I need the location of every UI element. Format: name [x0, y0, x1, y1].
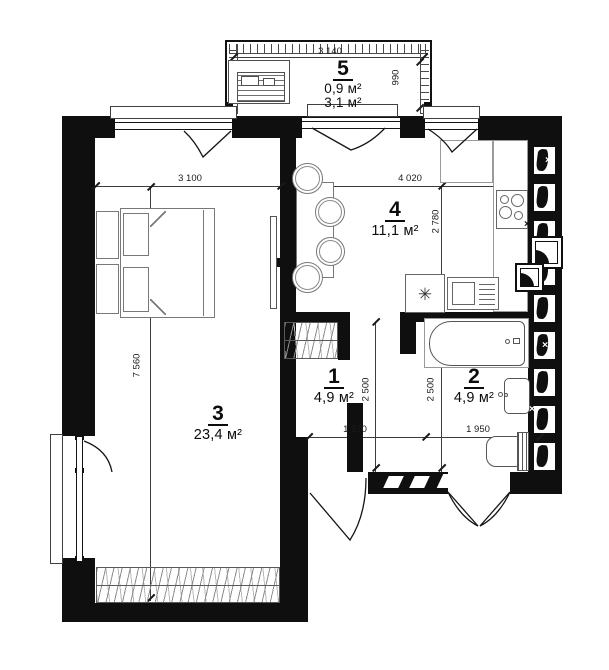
dim-hall-width: 1 970 [325, 424, 385, 435]
double-door-left-leaf [448, 492, 478, 526]
room-number: 1 [324, 366, 344, 389]
room-area-total: 3,1 м² [298, 95, 388, 110]
room-number: 5 [333, 58, 353, 81]
left-window-swing [84, 441, 112, 472]
room-label-4: 4 11,1 м² [345, 199, 445, 239]
dim-balcony-width: 3 140 [300, 46, 360, 57]
room-label-2: 2 4,9 м² [430, 366, 518, 406]
room-area: 4,9 м² [290, 390, 378, 406]
dim-bath-width: 1 950 [448, 424, 508, 435]
dim-kitchen-width: 4 020 [380, 173, 440, 184]
dim-left-height: 7 560 [132, 341, 143, 391]
floor-plan: × × × × ✳ [0, 0, 609, 670]
room-number: 4 [385, 199, 405, 222]
vent-x-mark: × [545, 155, 551, 166]
room-number: 2 [464, 366, 484, 389]
vent-x-mark: × [524, 219, 530, 230]
vent-x-mark: × [529, 404, 535, 415]
dim-balcony-depth: 990 [391, 53, 402, 103]
vent-shaft-icon [515, 263, 544, 292]
room-number: 3 [208, 403, 228, 426]
room-area: 23,4 м² [162, 427, 274, 443]
vent-x-mark: × [542, 340, 548, 351]
double-door-right-leaf [480, 492, 510, 526]
room-area-heated: 0,9 м² [298, 81, 388, 96]
bedroom-casement-swing [184, 131, 231, 157]
entry-door-swing [310, 478, 366, 540]
dim-bedroom-width: 3 100 [160, 173, 220, 184]
room-label-3: 3 23,4 м² [162, 403, 274, 443]
room-area: 11,1 м² [345, 223, 445, 239]
kitchen-casement-swing [428, 129, 477, 152]
balcony-door-swing [312, 128, 385, 150]
room-label-5: 5 0,9 м² 3,1 м² [298, 58, 388, 110]
room-area: 4,9 м² [430, 390, 518, 406]
room-label-1: 1 4,9 м² [290, 366, 378, 406]
